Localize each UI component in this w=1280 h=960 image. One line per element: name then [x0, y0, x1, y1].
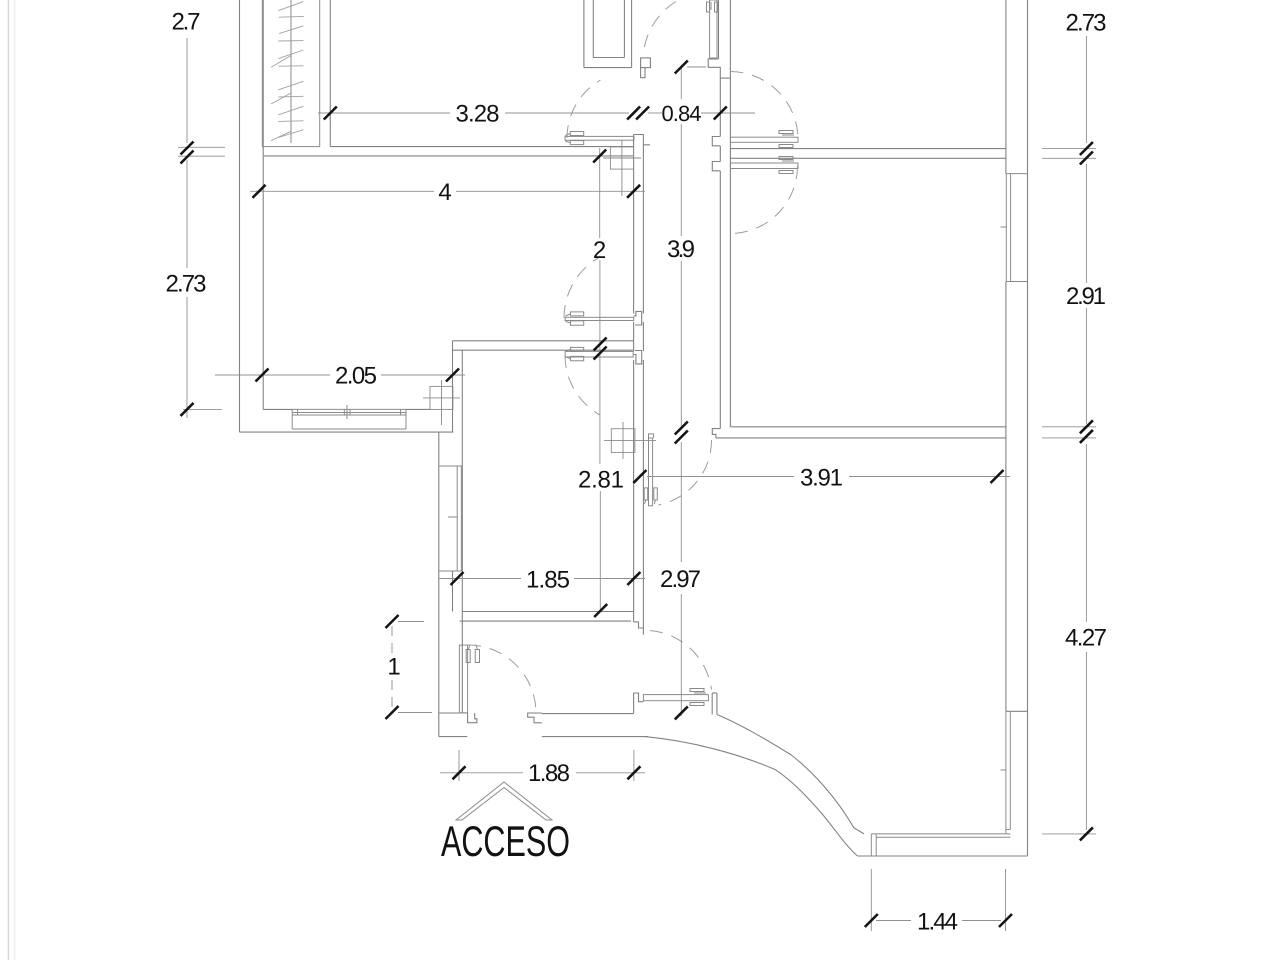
svg-text:3.28: 3.28: [456, 101, 500, 128]
svg-text:2.91: 2.91: [1066, 283, 1106, 310]
svg-text:3.91: 3.91: [800, 465, 843, 492]
svg-text:2.81: 2.81: [578, 467, 624, 494]
svg-text:ACCESO: ACCESO: [441, 818, 570, 866]
svg-text:2: 2: [593, 237, 606, 264]
svg-text:2.05: 2.05: [335, 363, 377, 390]
svg-text:2.97: 2.97: [660, 566, 701, 593]
svg-text:0.84: 0.84: [662, 101, 702, 126]
svg-text:1.88: 1.88: [528, 760, 570, 787]
svg-text:2.73: 2.73: [1066, 10, 1107, 37]
svg-text:3.9: 3.9: [667, 236, 695, 263]
svg-text:1.44: 1.44: [917, 909, 958, 936]
svg-text:2.7: 2.7: [172, 9, 201, 36]
svg-text:1.85: 1.85: [526, 567, 570, 594]
svg-text:4.27: 4.27: [1065, 625, 1107, 652]
svg-text:1: 1: [387, 654, 400, 681]
svg-text:2.73: 2.73: [166, 271, 207, 298]
svg-text:4: 4: [438, 179, 451, 206]
